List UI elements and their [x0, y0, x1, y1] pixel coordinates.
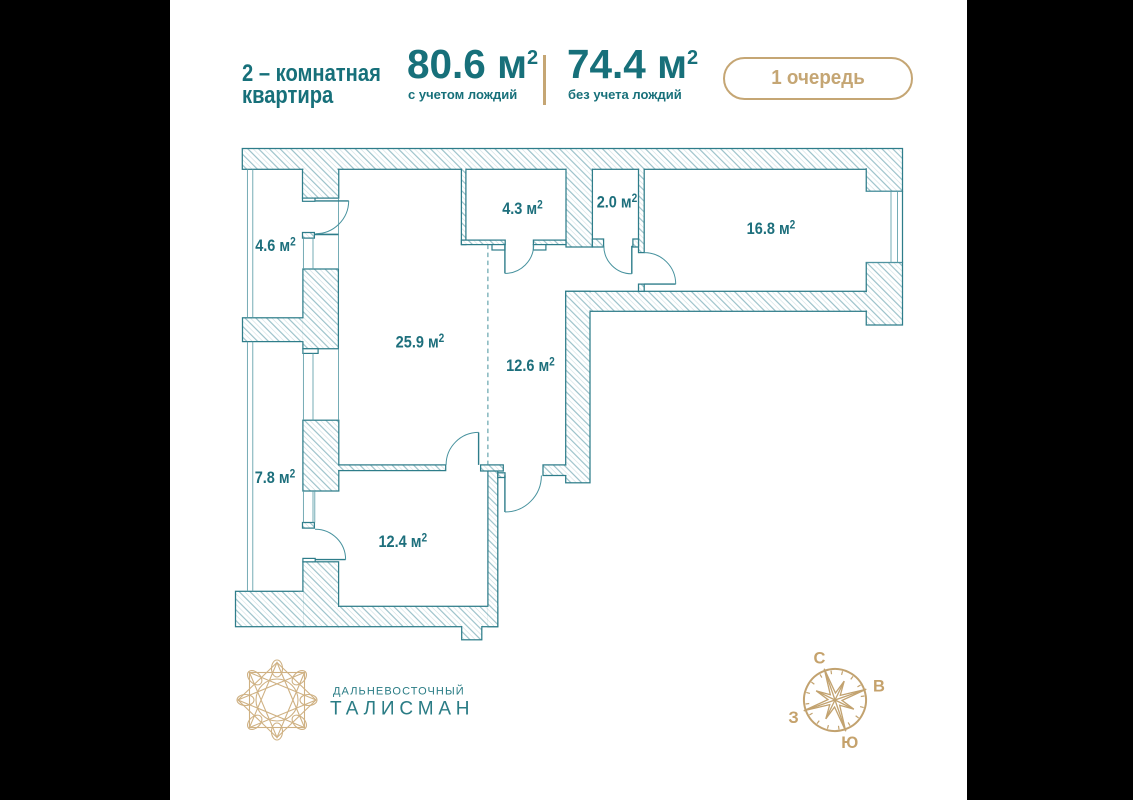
svg-text:З: З — [788, 709, 798, 727]
svg-text:В: В — [873, 677, 885, 695]
svg-text:25.9 м2: 25.9 м2 — [396, 332, 445, 351]
svg-text:12.4 м2: 12.4 м2 — [378, 532, 427, 551]
svg-text:2.0 м2: 2.0 м2 — [597, 192, 638, 211]
svg-text:12.6 м2: 12.6 м2 — [506, 356, 555, 375]
svg-text:16.8 м2: 16.8 м2 — [747, 219, 796, 238]
svg-text:7.8 м2: 7.8 м2 — [255, 468, 296, 487]
svg-text:С: С — [814, 649, 826, 667]
svg-text:4.3 м2: 4.3 м2 — [502, 199, 543, 218]
svg-text:Ю: Ю — [841, 734, 858, 752]
svg-text:ТАЛИСМАН: ТАЛИСМАН — [330, 699, 474, 720]
svg-text:4.6 м2: 4.6 м2 — [255, 236, 296, 255]
svg-text:ДАЛЬНЕВОСТОЧНЫЙ: ДАЛЬНЕВОСТОЧНЫЙ — [333, 685, 465, 698]
